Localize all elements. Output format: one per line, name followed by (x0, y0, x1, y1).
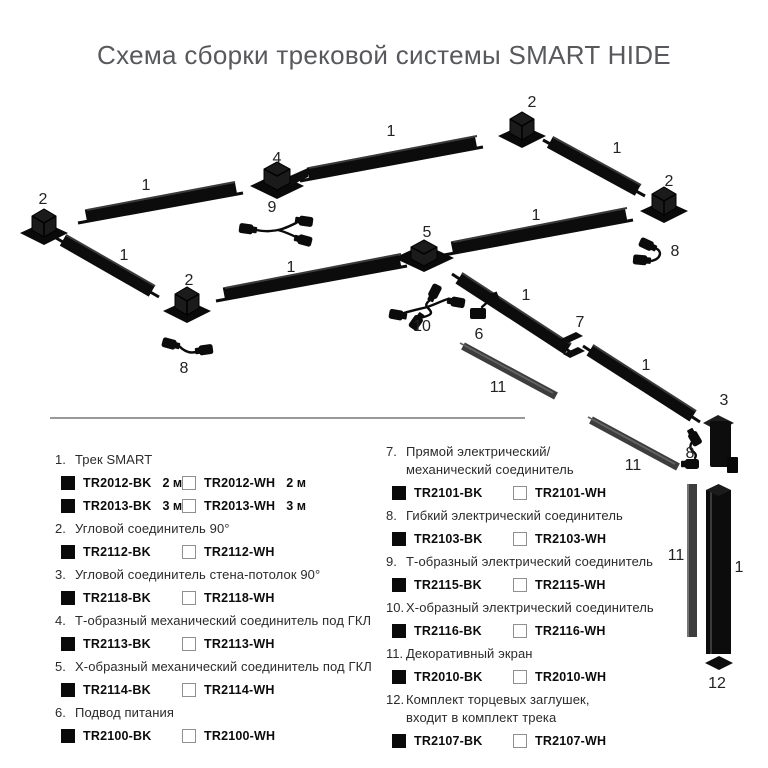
black-variant-checkbox (392, 734, 406, 748)
product-code: TR2012-WH (204, 476, 275, 490)
part-number-label: 3 (720, 392, 729, 409)
product-code: TR2116-WH (535, 624, 606, 638)
black-variant-checkbox (392, 670, 406, 684)
legend-item: 11.Декоративный экранTR2010-BKTR2010-WH (386, 645, 726, 688)
product-variant-wh: TR2118-WH (182, 591, 275, 605)
legend-item-name: Угловой соединитель 90° (75, 520, 230, 538)
legend-item-name: Комплект торцевых заглушек, входит в ком… (406, 691, 590, 727)
legend-item-number: 7. (386, 443, 406, 479)
part-number-label: 5 (423, 224, 432, 241)
legend-product-row: TR2013-BK3 мTR2013-WH3 м (61, 494, 395, 517)
product-code: TR2010-BK (414, 670, 483, 684)
product-variant-wh: TR2012-WH2 м (182, 476, 306, 490)
product-variant-bk: TR2114-BK (61, 683, 182, 697)
legend-item-title: 9.Т-образный электрический соединитель (386, 553, 726, 571)
part-number-label: 8 (180, 360, 189, 377)
white-variant-checkbox (182, 683, 196, 697)
track-segment (300, 136, 483, 181)
legend-item-title: 1.Трек SMART (55, 451, 395, 469)
legend-product-row: TR2116-BKTR2116-WH (392, 619, 726, 642)
product-code: TR2113-WH (204, 637, 275, 651)
part-number-label: 6 (475, 326, 484, 343)
part-number-label: 8 (671, 243, 680, 260)
legend-item: 7.Прямой электрический/ механический сое… (386, 443, 726, 504)
part-number-label: 2 (185, 272, 194, 289)
part-number-label: 1 (522, 287, 531, 304)
product-code: TR2013-WH (204, 499, 275, 513)
product-variant-bk: TR2010-BK (392, 670, 513, 684)
legend-product-row: TR2115-BKTR2115-WH (392, 573, 726, 596)
product-variant-wh: TR2112-WH (182, 545, 275, 559)
white-variant-checkbox (182, 545, 196, 559)
black-variant-checkbox (61, 729, 75, 743)
legend-item-name: Гибкий электрический соединитель (406, 507, 623, 525)
product-code: TR2100-WH (204, 729, 275, 743)
product-code: TR2112-WH (204, 545, 275, 559)
product-code: TR2010-WH (535, 670, 606, 684)
black-variant-checkbox (61, 683, 75, 697)
legend-item-title: 8.Гибкий электрический соединитель (386, 507, 726, 525)
part-number-label: 7 (576, 314, 585, 331)
legend-item-title: 5.Х-образный механический соединитель по… (55, 658, 395, 676)
legend-item-number: 9. (386, 553, 406, 571)
product-variant-bk: TR2107-BK (392, 734, 513, 748)
legend-product-row: TR2103-BKTR2103-WH (392, 527, 726, 550)
product-code: TR2118-WH (204, 591, 275, 605)
decorative-screen (460, 343, 556, 396)
part-number-label: 2 (665, 173, 674, 190)
product-code: TR2107-BK (414, 734, 483, 748)
white-variant-checkbox (513, 624, 527, 638)
corner-connector-90 (498, 112, 546, 148)
legend-item-name: Декоративный экран (406, 645, 533, 663)
white-variant-checkbox (513, 578, 527, 592)
legend-item: 2.Угловой соединитель 90°TR2112-BKTR2112… (55, 520, 395, 563)
black-variant-checkbox (61, 499, 75, 513)
white-variant-checkbox (182, 591, 196, 605)
track-segment (543, 137, 645, 196)
legend-item-number: 10. (386, 599, 406, 617)
white-variant-checkbox (182, 637, 196, 651)
legend-column-right: 7.Прямой электрический/ механический сое… (386, 440, 726, 752)
legend-item: 6.Подвод питанияTR2100-BKTR2100-WH (55, 704, 395, 747)
legend-product-row: TR2100-BKTR2100-WH (61, 724, 395, 747)
product-variant-bk: TR2012-BK2 м (61, 476, 182, 490)
part-number-label: 1 (613, 140, 622, 157)
legend-product-row: TR2107-BKTR2107-WH (392, 729, 726, 752)
black-variant-checkbox (61, 476, 75, 490)
product-code: TR2101-WH (535, 486, 606, 500)
legend-column-left: 1.Трек SMARTTR2012-BK2 мTR2012-WH2 мTR20… (55, 448, 395, 747)
legend-item: 1.Трек SMARTTR2012-BK2 мTR2012-WH2 мTR20… (55, 451, 395, 517)
product-code: TR2101-BK (414, 486, 483, 500)
legend-product-row: TR2101-BKTR2101-WH (392, 481, 726, 504)
product-code: TR2012-BK (83, 476, 152, 490)
product-code: TR2103-BK (414, 532, 483, 546)
legend-product-row: TR2118-BKTR2118-WH (61, 586, 395, 609)
legend-item-title: 4.Т-образный механический соединитель по… (55, 612, 395, 630)
product-variant-bk: TR2116-BK (392, 624, 513, 638)
product-length: 3 м (286, 499, 306, 513)
product-code: TR2116-BK (414, 624, 482, 638)
product-variant-bk: TR2100-BK (61, 729, 182, 743)
legend-item-title: 10.Х-образный электрический соединитель (386, 599, 726, 617)
product-variant-wh: TR2013-WH3 м (182, 499, 306, 513)
legend-item-name: Подвод питания (75, 704, 174, 722)
part-number-label: 4 (273, 150, 282, 167)
product-length: 3 м (163, 499, 183, 513)
product-variant-wh: TR2107-WH (513, 734, 606, 748)
black-variant-checkbox (61, 591, 75, 605)
white-variant-checkbox (513, 532, 527, 546)
part-number-label: 10 (413, 318, 431, 335)
legend-item-title: 3.Угловой соединитель стена-потолок 90° (55, 566, 395, 584)
product-code: TR2118-BK (83, 591, 151, 605)
white-variant-checkbox (513, 486, 527, 500)
flexible-electrical-connector (633, 237, 660, 266)
flexible-electrical-connector (161, 337, 214, 356)
black-variant-checkbox (392, 578, 406, 592)
part-number-label: 1 (287, 259, 296, 276)
legend-item-number: 1. (55, 451, 75, 469)
legend-item-name: Х-образный электрический соединитель (406, 599, 654, 617)
part-number-label: 1 (642, 357, 651, 374)
product-variant-bk: TR2013-BK3 м (61, 499, 182, 513)
black-variant-checkbox (392, 486, 406, 500)
legend-item-name: Х-образный механический соединитель под … (75, 658, 372, 676)
legend-item-title: 12.Комплект торцевых заглушек, входит в … (386, 691, 726, 727)
product-code: TR2103-WH (535, 532, 606, 546)
track-segment (56, 235, 159, 297)
part-number-label: 11 (490, 379, 507, 396)
legend-item-name: Угловой соединитель стена-потолок 90° (75, 566, 320, 584)
product-variant-bk: TR2115-BK (392, 578, 513, 592)
legend-item-title: 7.Прямой электрический/ механический сое… (386, 443, 726, 479)
product-variant-wh: TR2115-WH (513, 578, 606, 592)
product-variant-bk: TR2112-BK (61, 545, 182, 559)
legend-item-number: 2. (55, 520, 75, 538)
legend-product-row: TR2012-BK2 мTR2012-WH2 м (61, 471, 395, 494)
legend-item-number: 4. (55, 612, 75, 630)
product-variant-wh: TR2100-WH (182, 729, 275, 743)
part-number-label: 1 (532, 207, 541, 224)
legend-product-row: TR2112-BKTR2112-WH (61, 540, 395, 563)
product-code: TR2100-BK (83, 729, 152, 743)
product-variant-wh: TR2103-WH (513, 532, 606, 546)
product-code: TR2114-WH (204, 683, 275, 697)
black-variant-checkbox (392, 624, 406, 638)
part-number-label: 1 (735, 559, 744, 576)
legend-item: 4.Т-образный механический соединитель по… (55, 612, 395, 655)
product-length: 2 м (286, 476, 306, 490)
legend-item-number: 11. (386, 645, 406, 663)
product-code: TR2115-BK (414, 578, 482, 592)
section-divider (50, 417, 525, 419)
product-length: 2 м (163, 476, 183, 490)
part-number-label: 1 (387, 123, 396, 140)
product-variant-wh: TR2010-WH (513, 670, 606, 684)
product-variant-wh: TR2114-WH (182, 683, 275, 697)
black-variant-checkbox (392, 532, 406, 546)
white-variant-checkbox (513, 670, 527, 684)
product-variant-wh: TR2116-WH (513, 624, 606, 638)
t-electrical-connector (238, 215, 313, 247)
legend-item-name: Т-образный механический соединитель под … (75, 612, 371, 630)
part-number-label: 9 (268, 199, 277, 216)
product-code: TR2114-BK (83, 683, 151, 697)
legend-item: 10.Х-образный электрический соединительT… (386, 599, 726, 642)
product-code: TR2115-WH (535, 578, 606, 592)
white-variant-checkbox (182, 476, 196, 490)
black-variant-checkbox (61, 545, 75, 559)
legend-item-name: Т-образный электрический соединитель (406, 553, 653, 571)
product-code: TR2112-BK (83, 545, 151, 559)
legend-item: 5.Х-образный механический соединитель по… (55, 658, 395, 701)
legend-item-title: 6.Подвод питания (55, 704, 395, 722)
legend-item: 8.Гибкий электрический соединительTR2103… (386, 507, 726, 550)
legend-item-title: 2.Угловой соединитель 90° (55, 520, 395, 538)
t-connector-gkl (250, 162, 308, 199)
legend-item-name: Прямой электрический/ механический соеди… (406, 443, 574, 479)
legend-item-number: 12. (386, 691, 406, 727)
product-variant-bk: TR2118-BK (61, 591, 182, 605)
white-variant-checkbox (182, 729, 196, 743)
track-segment (78, 182, 243, 223)
part-number-label: 1 (120, 247, 129, 264)
legend-item: 9.Т-образный электрический соединительTR… (386, 553, 726, 596)
corner-connector-90 (163, 287, 211, 323)
legend-product-row: TR2114-BKTR2114-WH (61, 678, 395, 701)
legend-item-number: 8. (386, 507, 406, 525)
legend-item-number: 6. (55, 704, 75, 722)
legend-product-row: TR2113-BKTR2113-WH (61, 632, 395, 655)
legend-item: 12.Комплект торцевых заглушек, входит в … (386, 691, 726, 752)
product-code: TR2107-WH (535, 734, 606, 748)
track-segment (216, 254, 407, 301)
legend-product-row: TR2010-BKTR2010-WH (392, 665, 726, 688)
product-code: TR2113-BK (83, 637, 151, 651)
corner-connector-90 (640, 187, 688, 223)
product-variant-wh: TR2101-WH (513, 486, 606, 500)
part-number-label: 2 (528, 94, 537, 111)
black-variant-checkbox (61, 637, 75, 651)
legend-item-name: Трек SMART (75, 451, 152, 469)
white-variant-checkbox (513, 734, 527, 748)
part-number-label: 2 (39, 191, 48, 208)
legend-item-title: 11.Декоративный экран (386, 645, 726, 663)
product-variant-bk: TR2113-BK (61, 637, 182, 651)
product-variant-wh: TR2113-WH (182, 637, 275, 651)
legend-item: 3.Угловой соединитель стена-потолок 90°T… (55, 566, 395, 609)
product-variant-bk: TR2101-BK (392, 486, 513, 500)
legend-item-number: 3. (55, 566, 75, 584)
product-code: TR2013-BK (83, 499, 152, 513)
product-variant-bk: TR2103-BK (392, 532, 513, 546)
white-variant-checkbox (182, 499, 196, 513)
legend-item-number: 5. (55, 658, 75, 676)
part-number-label: 1 (142, 177, 151, 194)
assembly-scheme-page: Схема сборки трековой системы SMART HIDE (0, 0, 768, 768)
